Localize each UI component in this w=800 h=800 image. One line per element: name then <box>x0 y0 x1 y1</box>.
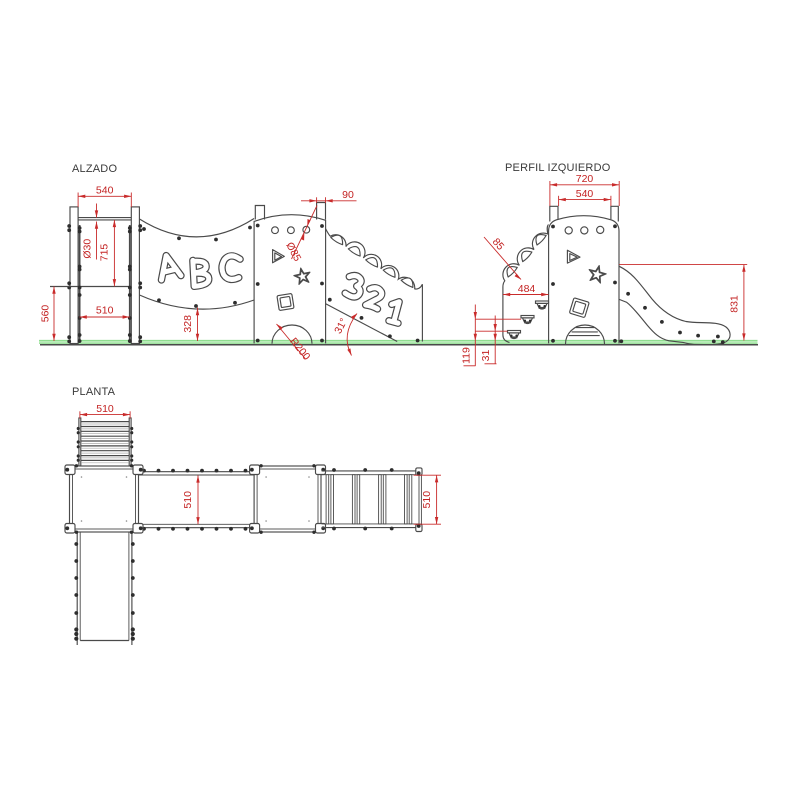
svg-text:720: 720 <box>576 173 594 185</box>
svg-text:510: 510 <box>182 491 194 509</box>
svg-text:Ø30: Ø30 <box>81 239 93 259</box>
svg-text:90: 90 <box>342 189 354 201</box>
svg-text:510: 510 <box>421 491 433 509</box>
svg-text:510: 510 <box>96 305 114 317</box>
svg-text:119: 119 <box>460 347 472 364</box>
svg-text:ALZADO: ALZADO <box>72 163 117 175</box>
svg-text:510: 510 <box>96 403 114 415</box>
svg-text:560: 560 <box>40 305 52 323</box>
svg-text:540: 540 <box>576 188 594 200</box>
svg-text:31: 31 <box>480 350 492 362</box>
svg-text:328: 328 <box>182 315 194 333</box>
svg-text:715: 715 <box>99 244 111 262</box>
svg-text:831: 831 <box>729 295 741 313</box>
svg-text:PERFIL IZQUIERDO: PERFIL IZQUIERDO <box>505 162 611 174</box>
svg-text:PLANTA: PLANTA <box>72 386 116 398</box>
svg-text:540: 540 <box>96 185 114 197</box>
svg-text:484: 484 <box>518 283 536 295</box>
